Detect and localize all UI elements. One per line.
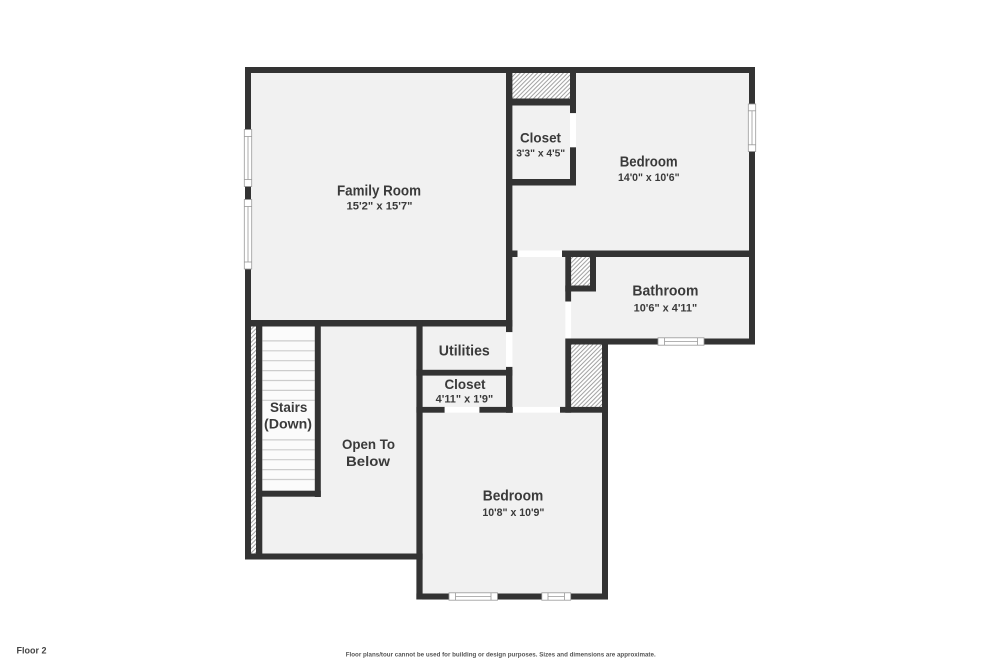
svg-text:4'11" x 1'9": 4'11" x 1'9" — [436, 393, 494, 405]
svg-text:10'8" x 10'9": 10'8" x 10'9" — [482, 507, 544, 519]
svg-text:15'2" x 15'7": 15'2" x 15'7" — [347, 201, 413, 213]
svg-text:Family Room: Family Room — [337, 183, 421, 200]
svg-text:Below: Below — [346, 453, 390, 469]
svg-text:Utilities: Utilities — [439, 343, 490, 360]
svg-text:Closet: Closet — [520, 129, 561, 145]
svg-text:3'3" x 4'5": 3'3" x 4'5" — [516, 148, 565, 160]
svg-text:Floor 2: Floor 2 — [17, 646, 47, 656]
svg-text:Bathroom: Bathroom — [632, 283, 698, 300]
svg-text:10'6" x 4'11": 10'6" x 4'11" — [634, 302, 698, 314]
svg-text:Stairs: Stairs — [270, 400, 308, 415]
svg-text:14'0" x 10'6": 14'0" x 10'6" — [618, 172, 680, 184]
svg-text:Bedroom: Bedroom — [483, 488, 544, 505]
svg-text:Closet: Closet — [445, 376, 486, 392]
svg-text:(Down): (Down) — [264, 417, 312, 432]
svg-text:Floor plans/tour cannot be use: Floor plans/tour cannot be used for buil… — [346, 651, 656, 658]
svg-text:Open To: Open To — [342, 436, 395, 452]
svg-text:Bedroom: Bedroom — [620, 154, 678, 171]
